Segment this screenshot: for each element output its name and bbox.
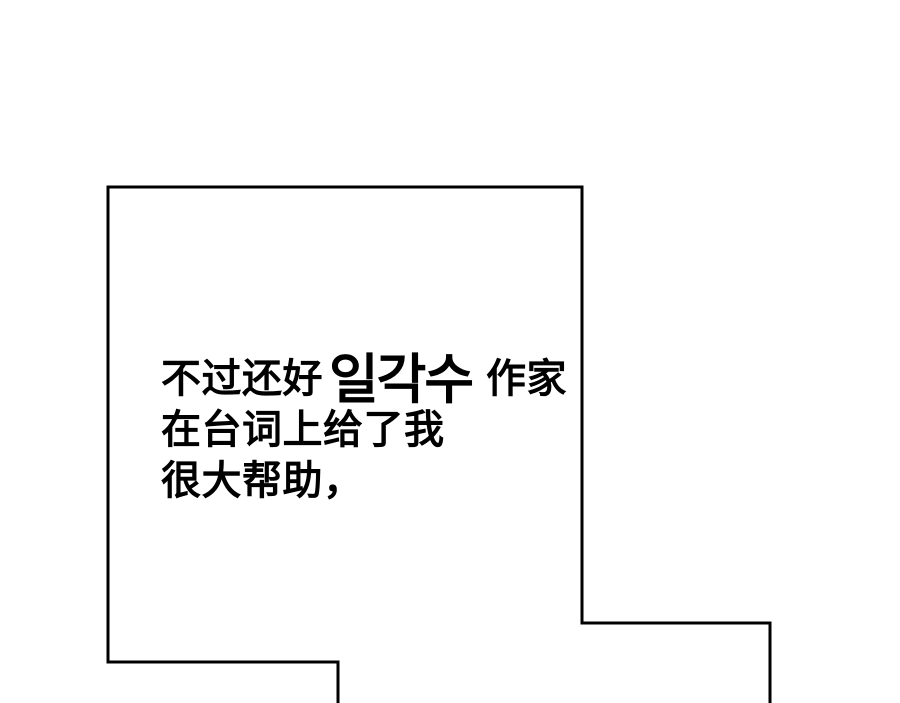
dialogue-line-3: 很大帮助， bbox=[161, 456, 571, 507]
dialogue-text-block: 不过还好일각수作家 在台词上给了我 很大帮助， bbox=[161, 354, 571, 507]
dialogue-line-2: 在台词上给了我 bbox=[161, 405, 571, 456]
dialogue-line1-chinese-suffix: 作家 bbox=[486, 357, 567, 401]
dialogue-line-1: 不过还好일각수作家 bbox=[161, 354, 571, 405]
dialogue-line1-korean-author-name: 일각수 bbox=[329, 350, 472, 410]
dialogue-line1-chinese-prefix: 不过还好 bbox=[161, 357, 323, 401]
dialogue-line3-text: 很大帮助， bbox=[161, 459, 364, 503]
comic-page: 不过还好일각수作家 在台词上给了我 很大帮助， bbox=[0, 0, 900, 703]
dialogue-line2-text: 在台词上给了我 bbox=[161, 408, 445, 452]
